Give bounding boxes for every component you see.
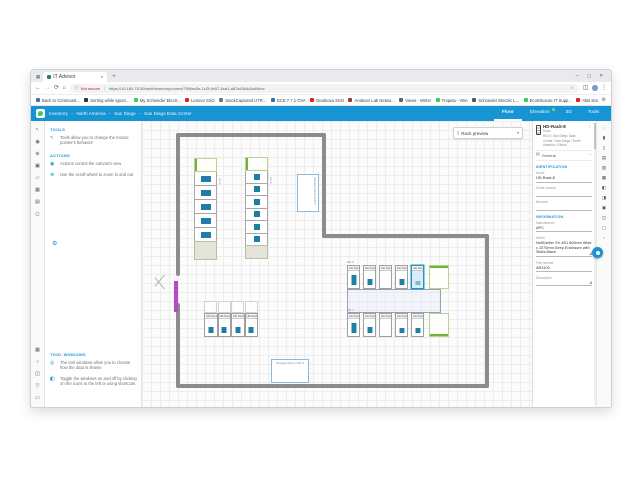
rack-label: HB-Rack-2 [219, 314, 231, 319]
help-section-heading: TOOL WINDOWS [50, 352, 138, 357]
device [235, 327, 240, 333]
bookmarks-gear-icon[interactable]: ⚙ [602, 98, 606, 103]
device [415, 328, 420, 333]
settings-gear-icon[interactable]: ⚙ [52, 241, 57, 247]
help-panel-bottom: TOOL WINDOWS◎The tool windows allow you … [50, 352, 138, 394]
app-tab-label: 3D [566, 110, 572, 115]
wall-bottom [176, 384, 489, 388]
help-panel-top: TOOLS↖Tools allow you to change the mous… [50, 127, 136, 178]
help-text: Toggle the windows on and off by clickin… [60, 376, 138, 387]
search-window-icon[interactable]: ○ [36, 356, 39, 368]
schneider-logo[interactable] [36, 109, 45, 118]
floorplan-canvas[interactable]: ▯ Rack preview ▾ HA 1H [142, 121, 532, 407]
rack-row-HD-6: HD 6HD-Rack-4HD-Rack-5HD-Rack-6HD-Rack-7… [347, 265, 449, 289]
field-label: Model [536, 236, 592, 240]
device [201, 232, 211, 238]
bookmark-label: Schneider Electric L... [478, 98, 519, 103]
rack-label: HB-Rack-1 [205, 314, 217, 319]
rack-HD-Rack-9[interactable]: HD-Rack-9 [347, 313, 360, 337]
overhead-tray [245, 301, 258, 313]
general-section-header[interactable]: ▤ General ⌃ [536, 150, 592, 161]
rack-HB-Rack-2[interactable]: HB-Rack-2 [218, 313, 232, 337]
bookmark-label: Back to Communit... [42, 98, 80, 103]
help-text: Use the scroll wheel to zoom in and out [60, 172, 133, 178]
close-button[interactable]: ✕ [599, 73, 603, 79]
bookmarks-bar: Back to Communit...Sorting while Ignori.… [31, 95, 611, 106]
rack-HD-Rack-5[interactable]: HD-Rack-5 [363, 265, 376, 289]
overhead-tray [231, 301, 244, 313]
equipment-type: Rack [543, 129, 585, 133]
bookmark-item[interactable]: Back to Communit... [36, 98, 80, 103]
green-accent [195, 159, 197, 171]
bookmark-favicon [524, 98, 528, 102]
overhead-tray [204, 301, 217, 313]
device [399, 328, 404, 333]
tab-favicon [47, 75, 51, 79]
bookmark-label: Sorting while Ignori... [90, 98, 129, 103]
bookmark-favicon [310, 98, 314, 102]
fab-icon [596, 251, 600, 255]
bookmark-item[interactable]: DCE 7.7.1 OVA [271, 98, 306, 103]
add-rack-tool-icon[interactable]: ▣ [35, 160, 40, 172]
rack[interactable] [194, 199, 217, 214]
bookmark-favicon [84, 98, 88, 102]
breadcrumb-separator: – [109, 111, 112, 116]
ups-icon[interactable]: ▦ [602, 173, 606, 183]
bookmark-label: Andover Lab Netwo... [354, 98, 394, 103]
field-input[interactable]: APC [536, 226, 592, 233]
browser-menu-icon[interactable]: ⋮ [601, 85, 607, 91]
field-input[interactable] [536, 191, 592, 197]
help-section: TOOLS↖Tools allow you to change the mous… [50, 127, 136, 146]
address-bar: ← → ⟳ ⌂ ⓘ Not secure https://10.160.78.3… [31, 82, 611, 95]
forward-icon[interactable]: → [45, 85, 51, 91]
device [208, 327, 213, 333]
green-accent [430, 334, 448, 336]
row-end-strip [194, 241, 217, 260]
split-screen-icon[interactable]: ◫ [583, 85, 589, 91]
field-label: Manufacturer [536, 221, 592, 225]
rack-label: HD-Rack-7 [396, 266, 407, 271]
rack-preview-dropdown[interactable]: ▯ Rack preview ▾ [453, 127, 523, 139]
scroll-help-icon: ⊕ [50, 172, 57, 178]
wall-top [176, 133, 326, 137]
cooling-unit[interactable] [245, 157, 268, 171]
device [201, 218, 211, 224]
field-input[interactable]: HD-Rack-8 [536, 176, 592, 183]
rack[interactable] [245, 220, 268, 234]
bookmark-item[interactable]: StackCaptured UTR... [219, 98, 266, 103]
rack-label: HB-Rack-3 [232, 314, 244, 319]
back-icon[interactable]: ← [35, 85, 41, 91]
field-serial-number: Serial number [536, 186, 592, 197]
pdu-icon[interactable]: ▥ [602, 163, 606, 173]
row-label: HD 6 [347, 260, 354, 264]
field-label: Description [536, 276, 592, 280]
rack[interactable] [245, 208, 268, 222]
url-text: https://10.160.78.30/web/inventory/rooms… [109, 86, 568, 91]
scroll-help: ⊕Use the scroll wheel to zoom in and out [50, 172, 136, 178]
device [201, 176, 211, 182]
notification-badge [552, 108, 555, 111]
bookmark-item[interactable]: Lenovo SSO [185, 98, 215, 103]
device [249, 327, 254, 333]
bookmark-favicon [134, 98, 138, 102]
bookmark-item[interactable]: Andover Lab Netwo... [348, 98, 394, 103]
rack-HB-Rack-3[interactable]: HB-Rack-3 [231, 313, 245, 337]
device [254, 224, 260, 230]
help-section-heading: TOOLS [50, 127, 136, 132]
app-header: Inventory–North America–San Diego–San Di… [31, 106, 611, 121]
rack-HB-Rack-4[interactable]: HB-Rack-4 [245, 313, 259, 337]
device [351, 275, 356, 285]
toggle-help-icon: ◧ [50, 376, 57, 387]
rack-HD-Rack-6[interactable]: HD-Rack-6 [379, 265, 392, 289]
room-annotation[interactable]: Storage Room HW 4 [271, 359, 309, 383]
properties-window-icon[interactable]: ◫ [35, 368, 40, 380]
breadcrumb-item[interactable]: Inventory [49, 111, 68, 116]
download-icon[interactable]: ▽ [36, 380, 40, 392]
field-part-number: Part numberAR3100 [536, 261, 592, 273]
zoom-tool-icon[interactable]: ⊕ [35, 148, 39, 160]
blanking-icon[interactable]: ▫ [603, 233, 605, 243]
green-accent [246, 158, 248, 170]
bookmark-favicon [348, 98, 352, 102]
equipment-location: HD 6 / San Diego Data Center / San Diego… [543, 134, 585, 146]
field-barcode: Barcode [536, 200, 592, 211]
power-tool-icon[interactable]: ▦ [35, 184, 40, 196]
bookmark-item[interactable]: Views - Writer [399, 98, 431, 103]
rack[interactable] [245, 195, 268, 209]
rack[interactable] [245, 170, 268, 184]
breadcrumb: Inventory–North America–San Diego–San Di… [49, 106, 192, 121]
help-section: ACTIONS◉Actions control the canvas's vie… [50, 153, 136, 178]
bookmark-label: DCE 7.7.1 OVA [277, 98, 306, 103]
device [254, 211, 260, 217]
rack-label: HB-Rack-4 [246, 314, 258, 319]
rack-label: HD-Rack-10 [364, 314, 375, 319]
device [201, 190, 211, 196]
collapse-icon[interactable]: ⌃ [589, 153, 592, 158]
bookmark-item[interactable]: EcoStruxure IT Supp... [524, 98, 572, 103]
refresh-icon[interactable]: ⟳ [54, 85, 59, 91]
row-label: HA 2 [269, 177, 273, 184]
rack-HB-Rack-1[interactable]: HB-Rack-1 [204, 313, 218, 337]
cooling-unit[interactable] [194, 158, 217, 172]
rack-row-HA-2: HA 2 [245, 157, 268, 259]
it-advisor-app: Inventory–North America–San Diego–San Di… [31, 106, 611, 407]
bookmark-label: Views - Writer [405, 98, 431, 103]
app-tab-floor[interactable]: Floor [494, 106, 522, 121]
row-label: HD 7 [347, 308, 354, 312]
bookmark-favicon [271, 98, 275, 102]
rack-HD-Rack-12[interactable]: HD-Rack-12 [395, 313, 408, 337]
workspace-menu-icon[interactable]: ▦ [36, 75, 40, 80]
print-icon[interactable]: ▭ [35, 392, 40, 404]
rack-HD-Rack-10[interactable]: HD-Rack-10 [363, 313, 376, 337]
tools-help-icon: ↖ [50, 135, 57, 146]
new-tab-button[interactable]: + [112, 74, 116, 80]
help-section: TOOL WINDOWS◎The tool windows allow you … [50, 352, 138, 387]
app-tab-label: Floor [502, 110, 514, 115]
power-panel[interactable] [174, 281, 178, 312]
rack-HD-Rack-8[interactable]: HD-Rack-8 [411, 265, 424, 289]
help-panel: TOOLS↖Tools allow you to change the mous… [45, 121, 142, 407]
bookmark-label: My Schneider Electr... [140, 98, 181, 103]
group-heading: INFORMATION [536, 215, 592, 219]
bookmark-star-icon[interactable]: ☆ [570, 86, 574, 91]
equipment-header-text: HD-Rack-8 Rack HD 6 / San Diego Data Cen… [543, 124, 585, 147]
tool-windows-help-icon: ◎ [50, 360, 57, 371]
field-description: Description [536, 276, 592, 287]
chevron-down-icon: ▾ [517, 131, 519, 135]
general-icon: ▤ [536, 153, 540, 157]
bookmark-label: Tropela - VBA [442, 98, 468, 103]
breadcrumb-item[interactable]: San Diego Data Center [144, 111, 192, 116]
tools-help: ↖Tools allow you to change the mouse poi… [50, 135, 136, 146]
field-input[interactable] [536, 281, 592, 287]
containment-aisle[interactable] [347, 289, 441, 313]
rack-label: HD-Rack-6 [380, 266, 391, 271]
panel-scrollbar[interactable] [594, 123, 596, 405]
app-tab-3d[interactable]: 3D [558, 106, 580, 121]
rack-HD-Rack-11[interactable]: HD-Rack-11 [379, 313, 392, 337]
field-label: Name [536, 171, 592, 175]
layers-window-icon[interactable]: ▦ [35, 344, 40, 356]
device [254, 236, 260, 242]
logo-mark-icon [38, 111, 43, 116]
rack[interactable] [194, 171, 217, 186]
equipment-strip: ⋮▮▯▤▥▦◧◨▣◫▢▫ [596, 121, 611, 407]
bookmark-label: Lenovo SSO [191, 98, 215, 103]
field-label: Barcode [536, 200, 592, 204]
green-accent [430, 266, 448, 268]
app-tab-elevation[interactable]: Elevation [522, 106, 558, 121]
cooling-unit[interactable] [429, 265, 449, 289]
rack-label: HD-Rack-11 [380, 314, 391, 319]
header-spacer [196, 106, 490, 121]
rack[interactable] [245, 183, 268, 197]
rack-HD-Rack-7[interactable]: HD-Rack-7 [395, 265, 408, 289]
field-input[interactable]: AR3100 [536, 266, 592, 273]
tool-strip: ↖◉⊕▣▱▦▤◻▦○◫▽▭ [31, 121, 45, 407]
rack[interactable] [245, 233, 268, 247]
wall-left-upper [176, 133, 180, 276]
bookmark-favicon [399, 98, 403, 102]
bookmark-item[interactable]: Sorting while Ignori... [84, 98, 129, 103]
browser-tab[interactable]: IT Advisor ✕ [43, 72, 107, 82]
equipment-header: HD-Rack-8 Rack HD 6 / San Diego Data Cen… [536, 124, 592, 147]
browser-titlebar: ▦ IT Advisor ✕ + ─ ▢ ✕ [31, 70, 611, 82]
rack-HD-Rack-4[interactable]: HD-Rack-4 [347, 265, 360, 289]
edit-tool-icon[interactable]: ▱ [36, 172, 40, 184]
cooling-unit[interactable] [429, 313, 449, 337]
overhead-tray [218, 301, 231, 313]
general-label: General [542, 153, 556, 158]
bookmark-favicon [185, 98, 189, 102]
scrollbar-thumb[interactable] [594, 123, 596, 149]
field-label: Serial number [536, 186, 592, 190]
field-label: Part number [536, 261, 592, 265]
sensor-icon[interactable]: ▢ [602, 223, 606, 233]
network-icon[interactable]: ◫ [602, 213, 606, 223]
open-frame-icon[interactable]: ▯ [603, 143, 605, 153]
rack-HD-Rack-13[interactable]: HD-Rack-13 [411, 313, 424, 337]
toggle-help: ◧Toggle the windows on and off by clicki… [50, 376, 138, 387]
help-section-heading: ACTIONS [50, 153, 136, 158]
wall-upper-right [322, 133, 326, 238]
group-heading: IDENTIFICATION [536, 165, 592, 169]
bookmark-favicon [36, 98, 40, 102]
rack-icon [536, 125, 541, 135]
rack-label: HD-Rack-13 [412, 314, 423, 319]
rack-preview-icon: ▯ [457, 131, 459, 135]
panel-menu-icon[interactable]: ⋮ [587, 124, 592, 147]
tab-title: IT Advisor [53, 74, 98, 80]
tab-close-icon[interactable]: ✕ [100, 75, 103, 79]
app-tab-tools[interactable]: Tools [580, 106, 607, 121]
row-label: HA 1 [218, 178, 222, 185]
bookmark-item[interactable]: Altis simulator [576, 98, 597, 103]
bookmark-label: Dealnova SSO [316, 98, 344, 103]
rack-label: HD-Rack-4 [348, 266, 359, 271]
device [367, 279, 372, 285]
minimize-button[interactable]: ─ [576, 73, 579, 79]
floorplan: HA 1HA 2HD 6HD-Rack-4HD-Rack-5HD-Rack-6H… [142, 121, 532, 407]
device [254, 199, 260, 205]
bookmark-item[interactable]: My Schneider Electr... [134, 98, 181, 103]
browser-window: ▦ IT Advisor ✕ + ─ ▢ ✕ ← → ⟳ ⌂ ⓘ Not sec… [30, 69, 612, 408]
bookmarks-list: Back to Communit...Sorting while Ignori.… [36, 98, 598, 103]
addressbar-actions: ◫ ⋮ [583, 85, 607, 91]
bookmark-favicon [472, 98, 476, 102]
bookmark-label: EcoStruxure IT Supp... [530, 98, 572, 103]
notes-tool-icon[interactable]: ▤ [35, 196, 40, 208]
breadcrumb-item[interactable]: San Diego [114, 111, 135, 116]
bookmark-favicon [436, 98, 440, 102]
device [399, 279, 404, 285]
rack[interactable] [194, 213, 217, 228]
properties-panel: HD-Rack-8 Rack HD 6 / San Diego Data Cen… [532, 121, 596, 407]
room-annotation[interactable]: Storage Room HW 3 [297, 174, 319, 212]
help-text: Tools allow you to change the mouse poin… [60, 135, 136, 146]
rack[interactable] [194, 227, 217, 242]
breadcrumb-separator: – [139, 111, 142, 116]
cooling-icon[interactable]: ◧ [602, 183, 606, 193]
rack-preview-label: Rack preview [461, 131, 488, 136]
rack-genome-icon[interactable]: ▮ [603, 133, 605, 143]
window-controls: ─ ▢ ✕ [576, 73, 603, 79]
field-name: NameHD-Rack-8 [536, 171, 592, 183]
bookmark-item[interactable]: Dealnova SSO [310, 98, 344, 103]
fit-view-icon[interactable]: ◻ [35, 208, 39, 220]
bookmark-item[interactable]: Tropela - VBA [436, 98, 468, 103]
app-tab-label: Tools [588, 110, 599, 115]
wall-right [485, 234, 489, 388]
bookmark-item[interactable]: Schneider Electric L... [472, 98, 519, 103]
wall-left-lower [176, 303, 180, 388]
device [201, 204, 211, 210]
field-input[interactable] [536, 205, 592, 211]
rack-label: HD-Rack-12 [396, 314, 407, 319]
device [254, 174, 260, 180]
help-text: Actions control the canvas's view [60, 161, 121, 167]
device [367, 327, 372, 333]
rack-label: HD-Rack-5 [364, 266, 375, 271]
url-input[interactable]: ⓘ Not secure https://10.160.78.30/web/in… [70, 84, 580, 93]
bookmark-label: StackCaptured UTR... [225, 98, 266, 103]
not-secure-icon[interactable]: ⓘ [75, 86, 79, 90]
device [222, 327, 227, 333]
actions-help: ◉Actions control the canvas's view [50, 161, 136, 167]
server-icon[interactable]: ▣ [602, 203, 606, 213]
help-text: The tool windows allow you to choose how… [60, 360, 138, 371]
bookmark-label: Altis simulator [582, 98, 597, 103]
device [415, 281, 420, 285]
device [351, 323, 356, 333]
rack-row-h: HB-Rack-1HB-Rack-2HB-Rack-3HB-Rack-4 [204, 313, 258, 337]
actions-help-icon: ◉ [50, 161, 57, 167]
breadcrumb-separator: – [71, 111, 74, 116]
bookmark-favicon [219, 98, 223, 102]
more-icon[interactable]: ⋮ [602, 123, 607, 133]
pointer-tool-icon[interactable]: ↖ [35, 124, 39, 136]
omnibox-divider [104, 86, 105, 91]
pan-tool-icon[interactable]: ◉ [35, 136, 39, 148]
security-label: Not secure [81, 86, 100, 91]
profile-avatar[interactable] [592, 85, 598, 91]
app-main: ↖◉⊕▣▱▦▤◻▦○◫▽▭ TOOLS↖Tools allow you to c… [31, 121, 611, 407]
rack-label: HD-Rack-8 [412, 266, 423, 271]
breadcrumb-item[interactable]: North America [76, 111, 105, 116]
device [254, 186, 260, 192]
row-end-strip [245, 245, 268, 259]
wall-mid-top [322, 234, 489, 238]
panel-icon[interactable]: ◨ [602, 193, 606, 203]
help-fab-button[interactable] [592, 247, 603, 258]
bookmark-favicon [576, 98, 580, 102]
rack[interactable] [194, 185, 217, 200]
rack-row-HD-7: HD 7HD-Rack-9HD-Rack-10HD-Rack-11HD-Rack… [347, 313, 449, 337]
tool-windows-help: ◎The tool windows allow you to choose ho… [50, 360, 138, 371]
shelf-icon[interactable]: ▤ [602, 153, 606, 163]
property-groups: IDENTIFICATIONNameHD-Rack-8Serial number… [536, 165, 592, 286]
app-tab-label: Elevation [530, 110, 550, 115]
field-model: ModelNetShelter SX 42U 600mm Wide x 1070… [536, 236, 592, 257]
home-icon[interactable]: ⌂ [63, 85, 67, 91]
rack-label: HD-Rack-9 [348, 314, 359, 319]
field-input[interactable]: NetShelter SX 42U 600mm Wide x 1070mm De… [536, 241, 592, 257]
rack-row-HA-1: HA 1 [194, 158, 217, 260]
app-tabs: FloorElevation3DTools [494, 106, 607, 121]
maximize-button[interactable]: ▢ [587, 73, 591, 79]
field-manufacturer: ManufacturerAPC [536, 221, 592, 233]
